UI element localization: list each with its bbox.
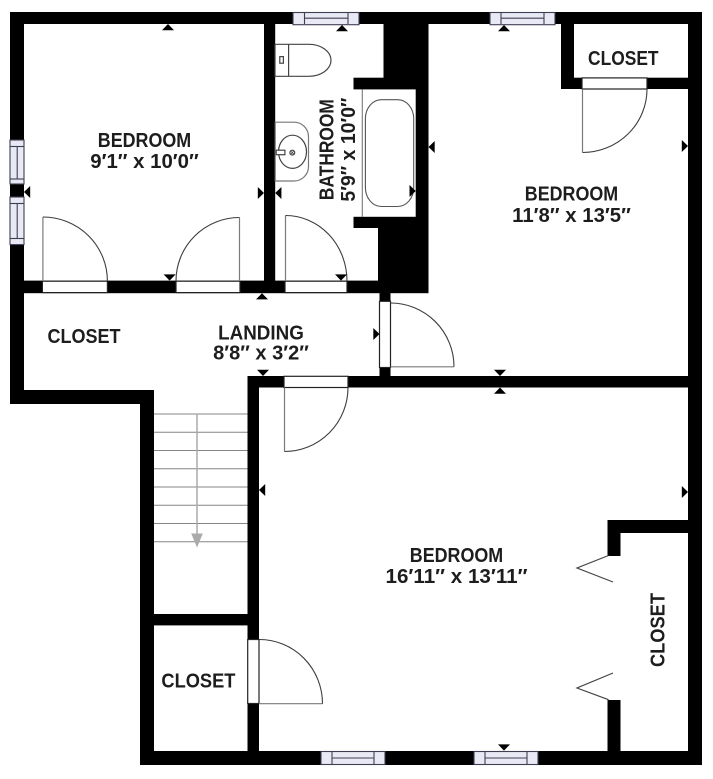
svg-text:BEDROOM: BEDROOM <box>525 184 618 206</box>
svg-text:BEDROOM: BEDROOM <box>98 130 191 152</box>
svg-text:CLOSET: CLOSET <box>648 593 670 667</box>
svg-text:9′1″ x 10′0″: 9′1″ x 10′0″ <box>90 151 199 173</box>
svg-text:16′11″ x 13′11″: 16′11″ x 13′11″ <box>386 566 528 588</box>
svg-text:8′8″ x 3′2″: 8′8″ x 3′2″ <box>213 343 309 365</box>
svg-text:11′8″ x 13′5″: 11′8″ x 13′5″ <box>512 205 631 227</box>
svg-text:BATHROOM: BATHROOM <box>316 99 338 200</box>
svg-text:5′9″ x 10′0″: 5′9″ x 10′0″ <box>338 97 360 201</box>
svg-text:CLOSET: CLOSET <box>48 326 121 348</box>
svg-text:CLOSET: CLOSET <box>161 671 235 693</box>
svg-text:BEDROOM: BEDROOM <box>410 545 503 567</box>
svg-text:LANDING: LANDING <box>218 323 304 345</box>
svg-text:CLOSET: CLOSET <box>588 48 659 70</box>
